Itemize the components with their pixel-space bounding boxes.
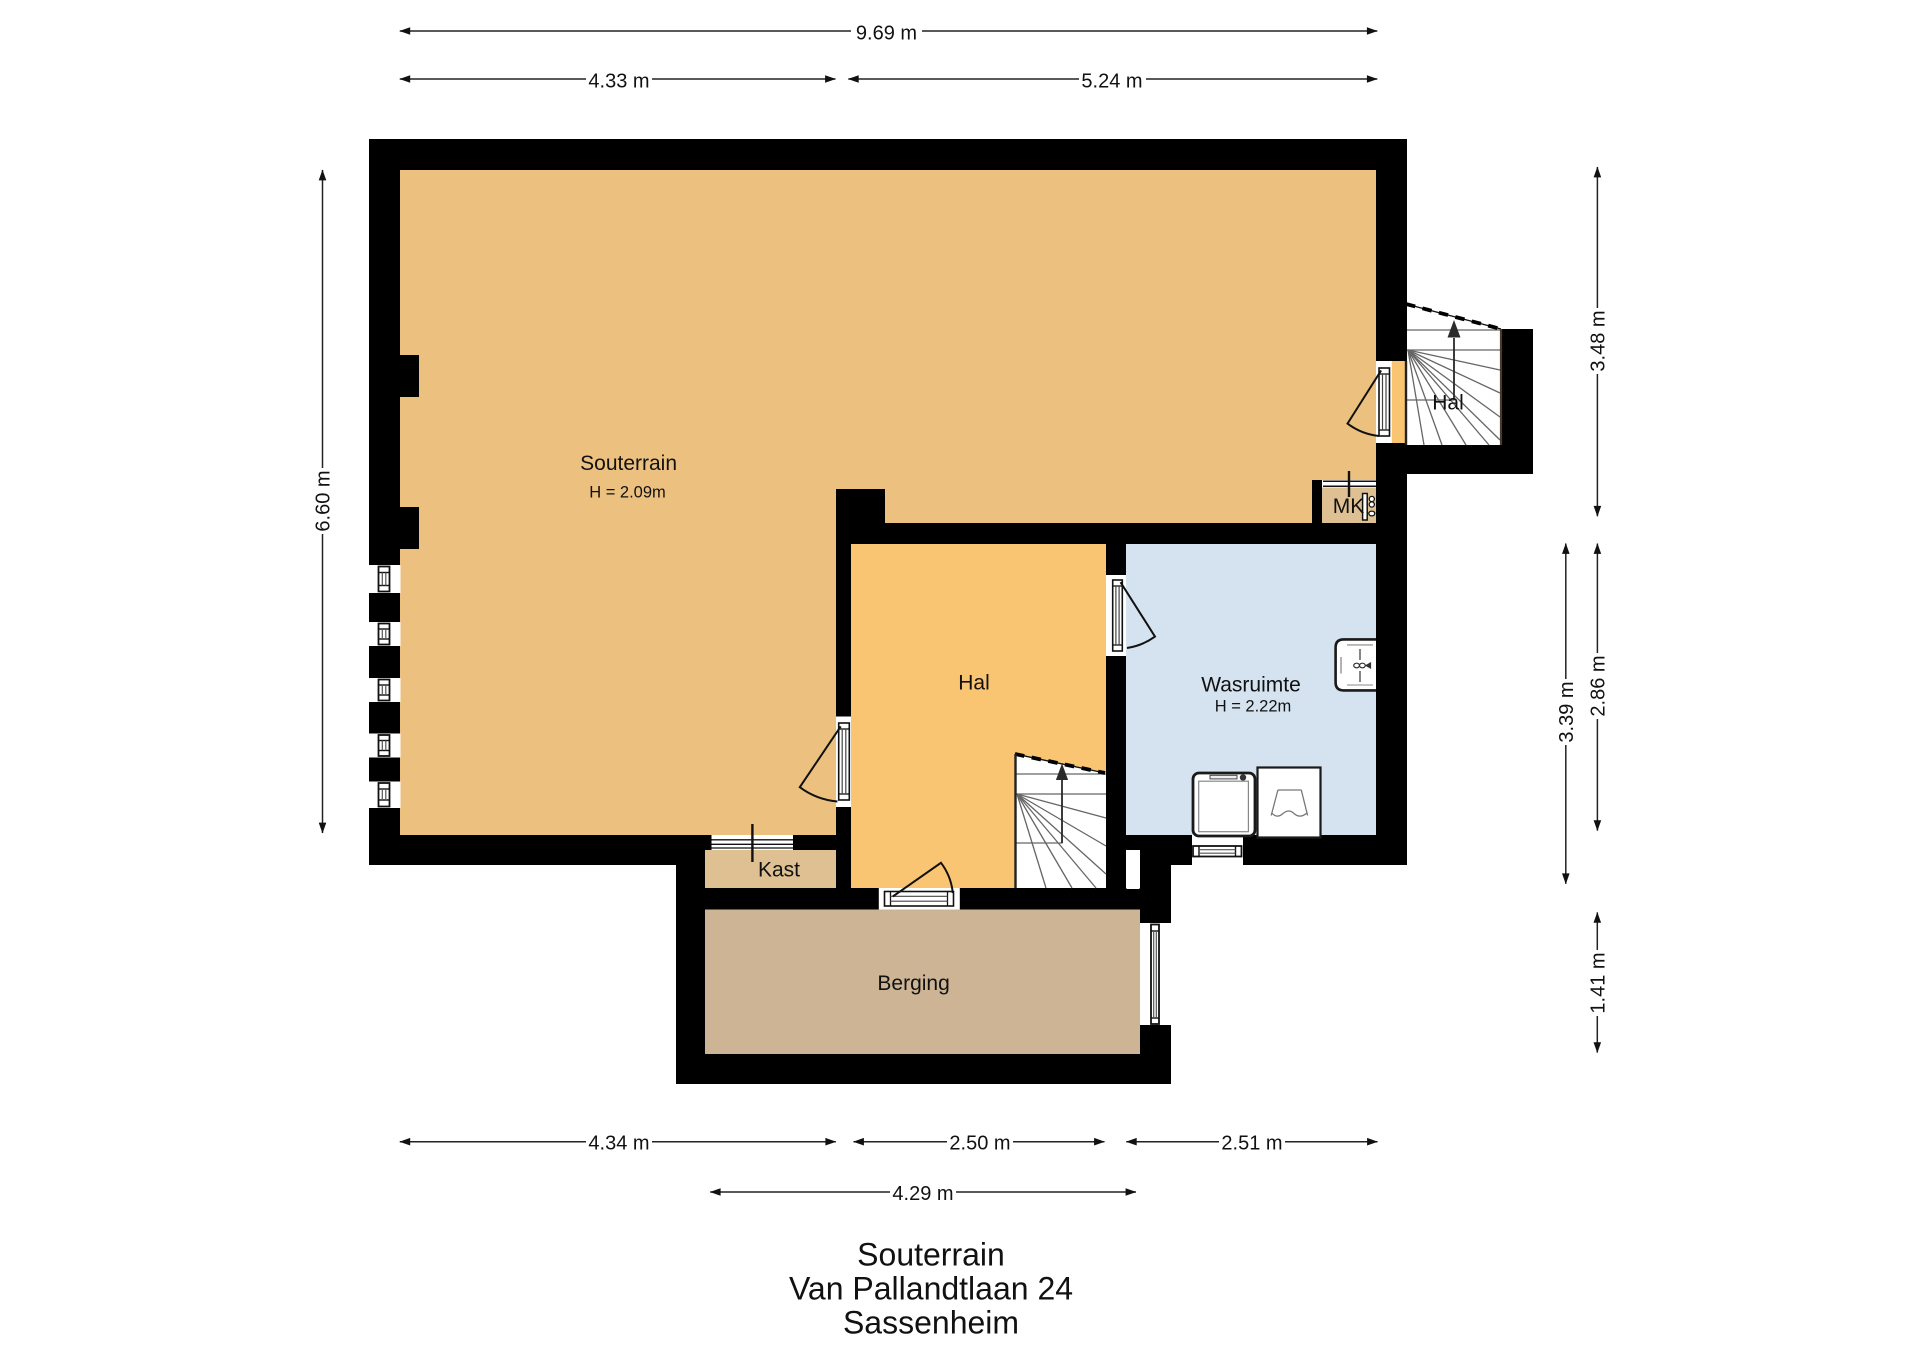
svg-text:MK: MK bbox=[1333, 495, 1365, 518]
svg-text:1.41 m: 1.41 m bbox=[1587, 952, 1609, 1013]
svg-text:Souterrain: Souterrain bbox=[857, 1237, 1005, 1273]
svg-text:Sassenheim: Sassenheim bbox=[843, 1305, 1019, 1341]
svg-text:Berging: Berging bbox=[877, 972, 949, 995]
svg-text:2.86 m: 2.86 m bbox=[1587, 655, 1609, 716]
svg-text:6.60 m: 6.60 m bbox=[313, 470, 335, 531]
svg-text:Souterrain: Souterrain bbox=[580, 452, 677, 475]
svg-text:H = 2.22m: H = 2.22m bbox=[1215, 698, 1292, 716]
svg-text:4.33 m: 4.33 m bbox=[588, 71, 649, 93]
svg-text:3.39 m: 3.39 m bbox=[1556, 681, 1578, 742]
svg-text:H = 2.09m: H = 2.09m bbox=[589, 484, 666, 502]
svg-text:Wasruimte: Wasruimte bbox=[1201, 674, 1301, 697]
svg-text:Hal: Hal bbox=[958, 672, 990, 695]
svg-text:Hal: Hal bbox=[1432, 392, 1464, 415]
svg-text:9.69 m: 9.69 m bbox=[856, 23, 917, 45]
svg-text:3.48 m: 3.48 m bbox=[1587, 310, 1609, 371]
svg-text:Van Pallandtlaan 24: Van Pallandtlaan 24 bbox=[789, 1271, 1073, 1307]
svg-text:2.51 m: 2.51 m bbox=[1221, 1133, 1282, 1155]
svg-text:4.34 m: 4.34 m bbox=[588, 1133, 649, 1155]
svg-text:Kast: Kast bbox=[758, 859, 800, 882]
svg-text:2.50 m: 2.50 m bbox=[949, 1133, 1010, 1155]
svg-text:5.24 m: 5.24 m bbox=[1081, 71, 1142, 93]
svg-text:4.29 m: 4.29 m bbox=[892, 1183, 953, 1205]
